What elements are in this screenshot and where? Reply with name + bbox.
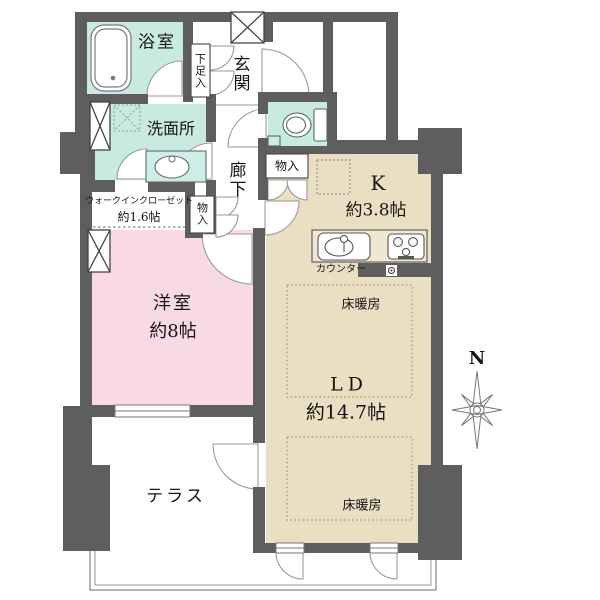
compass-icon (446, 371, 508, 449)
wic-name-label: ウォークインクローゼット (85, 198, 193, 207)
corridor-label: 廊下 (227, 161, 244, 199)
kitchen-name-label: K (371, 173, 386, 193)
kitchen-sink-icon (318, 233, 370, 260)
bath-label: 浴室 (138, 35, 176, 52)
washbasin-icon (146, 151, 206, 182)
balcony-door-right-arc (370, 552, 397, 579)
floor-heating-top-label: 床暖房 (341, 299, 380, 312)
terrace-label: テラス (146, 489, 206, 506)
bathtub-icon (91, 25, 131, 91)
pillar-left (60, 132, 87, 174)
bedroom-name-label: 洋室 (153, 295, 193, 313)
terrace-door-arc (213, 444, 258, 489)
balcony-door-left-arc (276, 552, 303, 579)
storage-left-label: 物入 (197, 202, 208, 226)
entrance-door-arc (262, 49, 309, 96)
storage-top-label: 物入 (275, 160, 299, 172)
floor-heating-bottom-label: 床暖房 (342, 500, 381, 513)
floorplan-graphics (0, 0, 600, 600)
counter-side-wall (358, 263, 443, 277)
stove-icon (388, 234, 424, 260)
entrance-label: 玄関 (231, 55, 248, 93)
counter-label: カウンター (316, 265, 366, 275)
living-name-label: LD (330, 376, 368, 395)
floorplan: 浴室 下足入 玄関 洗面所 廊下 物入 物入 ウォークインクローゼット 約1.6… (0, 0, 600, 600)
bedroom-size-label: 約8帖 (149, 323, 196, 341)
compass-north-label: N (469, 350, 485, 368)
wic-size-label: 約1.6帖 (117, 211, 160, 223)
living-size-label: 約14.7帖 (306, 404, 386, 423)
pillar-bottom-left (63, 406, 92, 551)
washroom-label: 洗面所 (147, 121, 195, 137)
kitchen-size-label: 約3.8帖 (345, 203, 406, 220)
shoe-cabinet-label: 下足入 (195, 53, 206, 89)
